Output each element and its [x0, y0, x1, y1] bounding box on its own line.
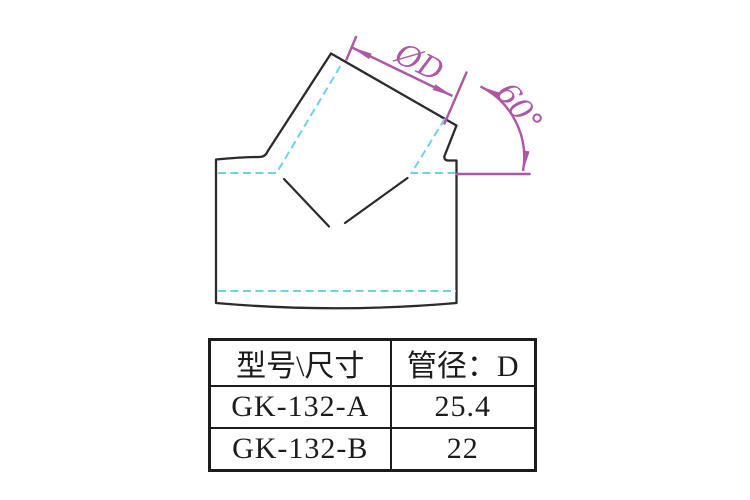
diameter-cell: 22	[391, 428, 536, 470]
socket-edge-right	[345, 178, 408, 223]
table-row: GK-132-B 22	[210, 428, 536, 470]
diameter-cell: 25.4	[391, 386, 536, 428]
spec-table-container: 型号\尺寸 管径：D GK-132-A 25.4 GK-132-B 22	[208, 338, 537, 472]
diameter-label: ØD	[389, 36, 449, 89]
table-header-row: 型号\尺寸 管径：D	[210, 340, 536, 387]
spec-table: 型号\尺寸 管径：D GK-132-A 25.4 GK-132-B 22	[208, 338, 537, 472]
model-cell: GK-132-A	[210, 386, 391, 428]
fitting-body-outline	[216, 54, 457, 309]
page: ØD 60° 型号\尺寸 管径：D GK-132-A 25.4	[0, 0, 750, 500]
diameter-extension-line-right	[445, 73, 467, 124]
centerline-left	[218, 63, 343, 174]
socket-edge-left	[284, 179, 329, 227]
header-model-size: 型号\尺寸	[210, 340, 391, 387]
header-pipe-diameter: 管径：D	[391, 340, 536, 387]
table-row: GK-132-A 25.4	[210, 386, 536, 428]
model-cell: GK-132-B	[210, 428, 391, 470]
angle-label: 60°	[489, 76, 549, 139]
